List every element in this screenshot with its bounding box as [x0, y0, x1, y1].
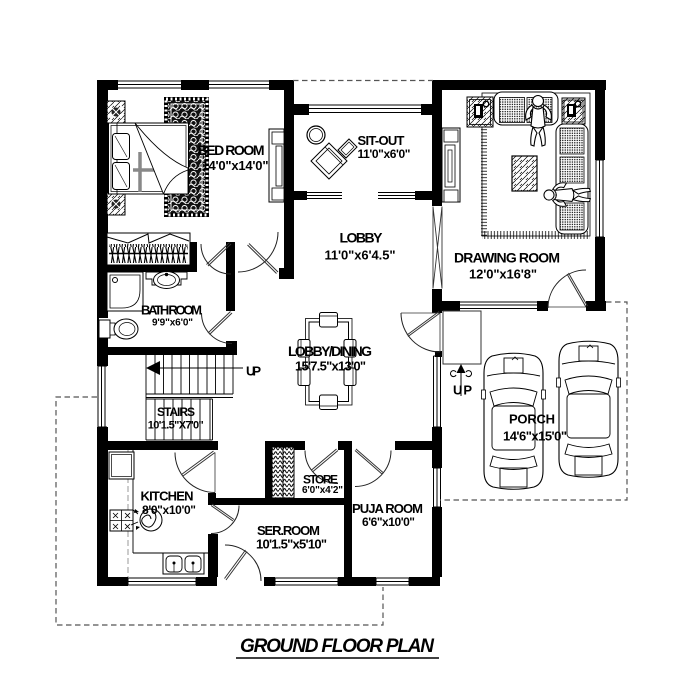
svg-text:10'1.5"x5'10": 10'1.5"x5'10" [256, 537, 327, 552]
svg-text:14'0"x14'0": 14'0"x14'0" [202, 158, 269, 173]
svg-text:DRAWING ROOM: DRAWING ROOM [454, 250, 560, 266]
svg-text:UP: UP [453, 383, 472, 398]
svg-text:6'6"x10'0": 6'6"x10'0" [362, 515, 415, 529]
svg-text:UP: UP [246, 364, 261, 379]
svg-text:10'1.5"X7'0": 10'1.5"X7'0" [148, 420, 204, 432]
svg-text:GROUND FLOOR PLAN: GROUND FLOOR PLAN [240, 636, 435, 657]
svg-text:9'9"x6'0": 9'9"x6'0" [152, 318, 193, 329]
svg-text:11'0"x6'4.5": 11'0"x6'4.5" [325, 248, 396, 263]
svg-text:KITCHEN: KITCHEN [141, 489, 194, 504]
svg-text:PUJA ROOM: PUJA ROOM [352, 501, 423, 516]
svg-text:15'7.5"x13'0": 15'7.5"x13'0" [295, 359, 366, 374]
svg-text:LOBBY: LOBBY [340, 230, 384, 246]
svg-text:PORCH: PORCH [509, 412, 555, 427]
svg-text:12'0"x16'8": 12'0"x16'8" [469, 267, 537, 282]
svg-text:STAIRS: STAIRS [157, 405, 195, 419]
svg-text:11'0"x6'0": 11'0"x6'0" [358, 147, 411, 161]
svg-text:14'6"x15'0": 14'6"x15'0" [503, 429, 567, 444]
svg-text:SIT-OUT: SIT-OUT [358, 133, 405, 148]
svg-text:6'0"x4'2": 6'0"x4'2" [302, 485, 343, 496]
svg-text:BED ROOM: BED ROOM [198, 142, 265, 158]
svg-text:8'0"x10'0": 8'0"x10'0" [142, 503, 196, 517]
svg-text:LOBBY/DINING: LOBBY/DINING [288, 343, 372, 359]
svg-text:BATH ROOM: BATH ROOM [141, 303, 202, 318]
